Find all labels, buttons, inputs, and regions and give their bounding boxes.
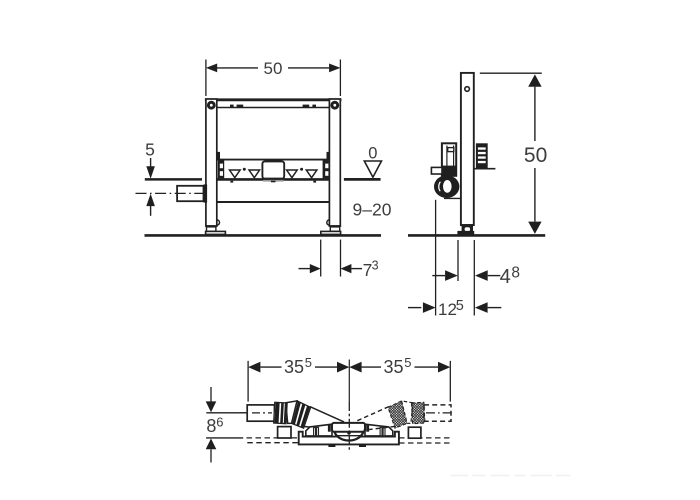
svg-text:3: 3 [372,259,379,273]
svg-text:9–20: 9–20 [353,199,392,219]
svg-text:35: 35 [384,357,404,377]
svg-text:8: 8 [206,416,216,436]
svg-text:5: 5 [404,355,411,370]
svg-text:8: 8 [511,264,520,281]
svg-text:35: 35 [284,357,304,377]
svg-text:4: 4 [500,266,511,288]
svg-text:5: 5 [305,355,312,370]
svg-text:12: 12 [438,300,457,319]
svg-text:0: 0 [368,144,377,162]
svg-text:50: 50 [524,144,547,167]
svg-text:6: 6 [216,414,223,429]
svg-text:5: 5 [456,298,464,314]
svg-text:50: 50 [264,59,283,78]
svg-text:5: 5 [145,140,155,160]
